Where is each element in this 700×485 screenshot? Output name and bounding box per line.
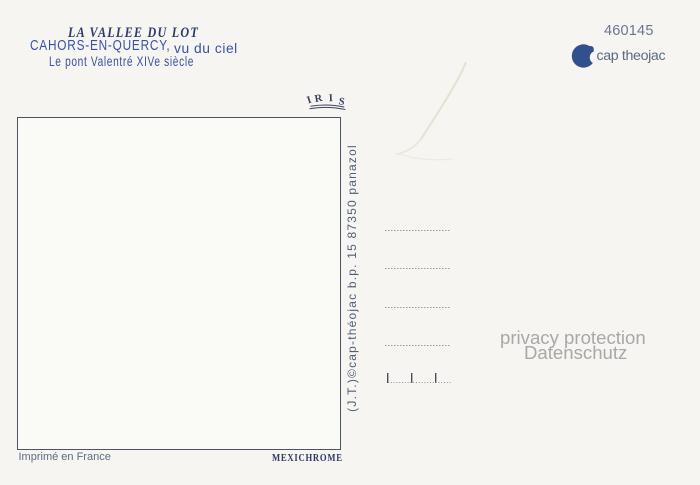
svg-text:I: I xyxy=(329,93,333,104)
svg-text:I: I xyxy=(306,95,313,107)
svg-text:R: R xyxy=(314,93,324,105)
